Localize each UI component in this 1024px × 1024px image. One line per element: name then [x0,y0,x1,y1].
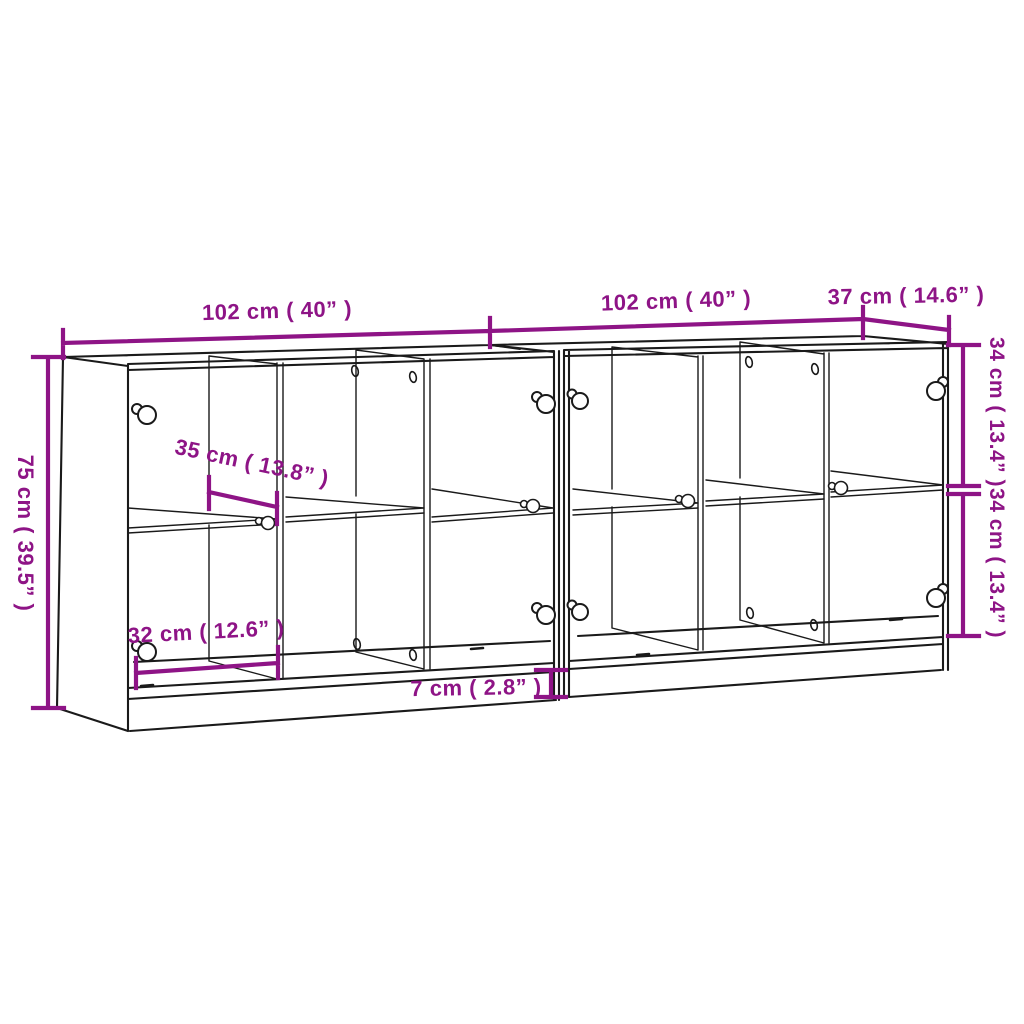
dim-width-right: 102 cm ( 40” ) [490,285,863,338]
back-panel-holes-right [745,356,820,631]
door-knob-icon [927,377,948,400]
dim-width-left-label: 102 cm ( 40” ) [202,296,353,325]
shelf-pin [682,495,695,508]
pin-hole [811,363,820,375]
dim-inner-width-label: 35 cm ( 13.8” ) [173,434,331,491]
back-panel-holes-left [351,365,418,661]
door-knob-icon [532,603,555,624]
pin-hole [409,649,418,661]
dim-upper-inner-height-label: 34 cm ( 13.4” ) [985,337,1008,487]
pin-hole [745,356,754,368]
unit-left-shelves [128,489,553,533]
cabinet-unit-left [57,345,559,731]
dim-width-right-label: 102 cm ( 40” ) [601,285,752,315]
dim-lower-inner-height-line [948,494,979,636]
dim-lower-inner-width-label: 32 cm ( 12.6” ) [127,615,285,648]
pin-hole [351,365,360,377]
unit-right-shelves [573,471,943,515]
dim-lower-inner-width-line [136,647,278,688]
pin-hole [409,371,418,383]
dim-plinth-height: 7 cm ( 2.8” ) [410,670,566,701]
dim-upper-inner-height-line [948,345,979,486]
dim-lower-inner-height: 34 cm ( 13.4” ) [948,488,1008,638]
dim-upper-inner-height: 34 cm ( 13.4” ) [948,337,1008,487]
pin-hole [746,607,755,619]
dim-height: 75 cm ( 39.5” ) [13,357,64,708]
dim-lower-inner-height-label: 34 cm ( 13.4” ) [985,488,1008,638]
dim-inner-width: 35 cm ( 13.8” ) [173,434,331,524]
dim-plinth-height-label: 7 cm ( 2.8” ) [410,674,542,701]
shelf-pin [835,482,848,495]
door-knob-icon [132,404,156,424]
door-knob-icon [927,584,948,607]
shelf-pin [262,517,275,530]
door-knob-icon [568,601,589,621]
door-knob-icon [568,390,589,410]
bookcase-dimension-diagram: 102 cm ( 40” ) 102 cm ( 40” ) 37 cm ( 14… [0,0,1024,1024]
unit-left-carcass-outline [57,345,559,731]
dim-depth-label: 37 cm ( 14.6” ) [827,282,984,310]
pin-hole [810,619,819,631]
shelf-pin [527,500,540,513]
dim-width-left: 102 cm ( 40” ) [63,296,490,358]
cabinet-drawing [57,336,948,731]
dim-height-label: 75 cm ( 39.5” ) [13,455,38,612]
product-dimension-image: 102 cm ( 40” ) 102 cm ( 40” ) 37 cm ( 14… [0,0,1024,1024]
pin-hole [353,638,362,650]
door-knob-icon [532,392,555,413]
